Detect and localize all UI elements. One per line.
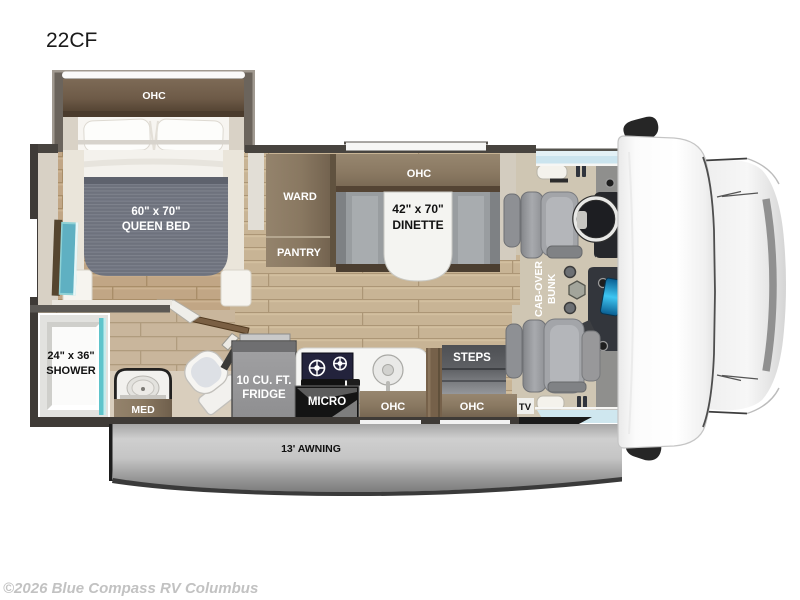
svg-text:MICRO: MICRO [308,396,346,408]
svg-text:22CF: 22CF [46,29,97,52]
svg-text:24" x 36": 24" x 36" [47,350,94,362]
svg-text:13' AWNING: 13' AWNING [281,443,341,455]
svg-text:OHC: OHC [381,401,406,413]
svg-text:60" x 70": 60" x 70" [131,206,180,218]
svg-text:STEPS: STEPS [453,352,491,364]
svg-text:QUEEN BED: QUEEN BED [122,221,190,233]
svg-text:BUNK: BUNK [546,273,558,304]
svg-text:FRIDGE: FRIDGE [242,389,286,401]
svg-text:WARD: WARD [283,191,317,203]
svg-text:PANTRY: PANTRY [277,247,322,259]
svg-text:MED: MED [131,404,155,416]
svg-text:CAB-OVER: CAB-OVER [533,261,545,317]
svg-text:©2026 Blue Compass RV Columbus: ©2026 Blue Compass RV Columbus [3,580,258,597]
svg-text:DINETTE: DINETTE [392,218,443,232]
svg-text:OHC: OHC [460,401,485,413]
svg-text:SHOWER: SHOWER [46,365,96,377]
svg-text:OHC: OHC [407,168,432,180]
svg-text:10 CU. FT.: 10 CU. FT. [237,375,292,387]
svg-text:OHC: OHC [142,90,166,102]
svg-text:42" x 70": 42" x 70" [392,202,443,216]
svg-text:TV: TV [519,402,532,413]
